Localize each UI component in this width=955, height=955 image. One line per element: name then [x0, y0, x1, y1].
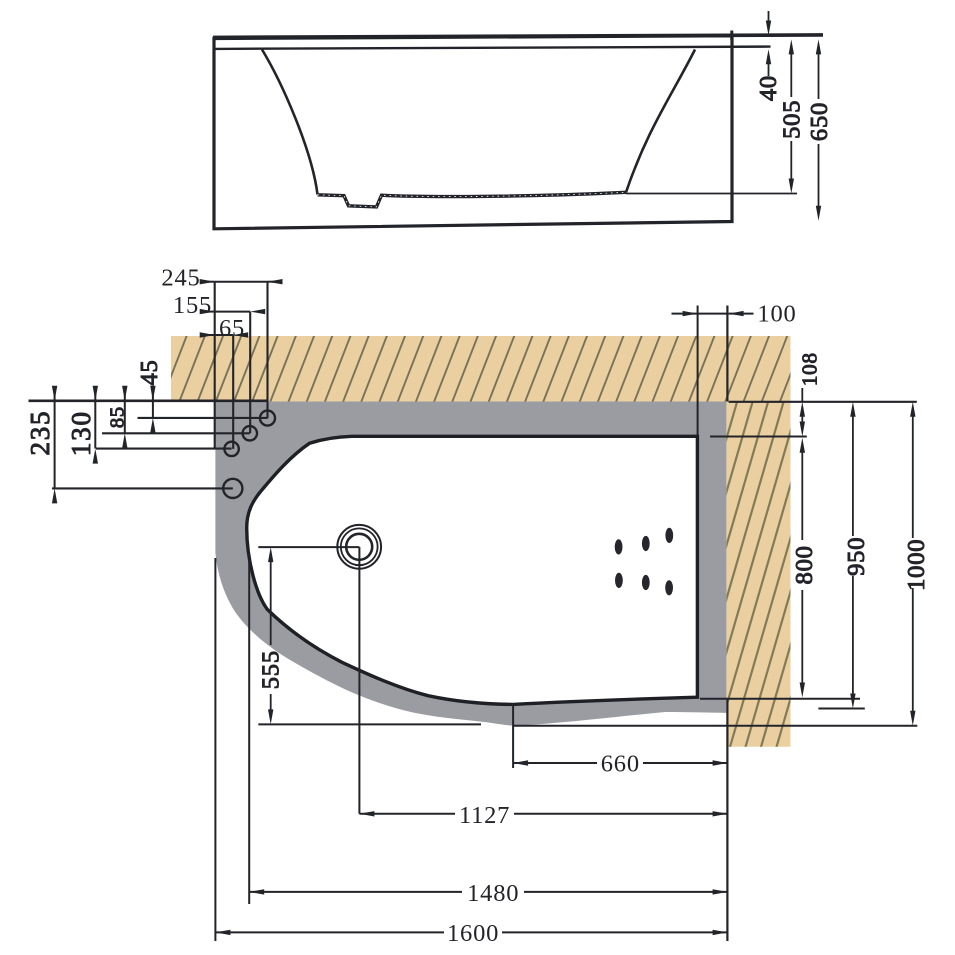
svg-text:1600: 1600: [447, 920, 499, 947]
svg-text:505: 505: [779, 100, 806, 139]
svg-text:235: 235: [25, 410, 55, 456]
svg-text:800: 800: [791, 545, 818, 584]
svg-text:130: 130: [66, 410, 96, 456]
svg-text:1480: 1480: [467, 880, 519, 907]
svg-text:100: 100: [757, 301, 796, 328]
svg-text:245: 245: [161, 264, 200, 291]
svg-text:650: 650: [806, 102, 833, 141]
svg-text:65: 65: [219, 315, 245, 342]
svg-text:950: 950: [843, 537, 870, 576]
svg-text:45: 45: [136, 359, 163, 385]
svg-text:1127: 1127: [459, 802, 510, 829]
svg-text:40: 40: [755, 75, 782, 101]
svg-text:660: 660: [601, 751, 640, 778]
svg-text:85: 85: [107, 406, 129, 428]
svg-text:108: 108: [798, 352, 822, 386]
svg-text:155: 155: [173, 292, 212, 319]
svg-text:555: 555: [258, 650, 285, 689]
svg-text:1000: 1000: [903, 539, 930, 591]
